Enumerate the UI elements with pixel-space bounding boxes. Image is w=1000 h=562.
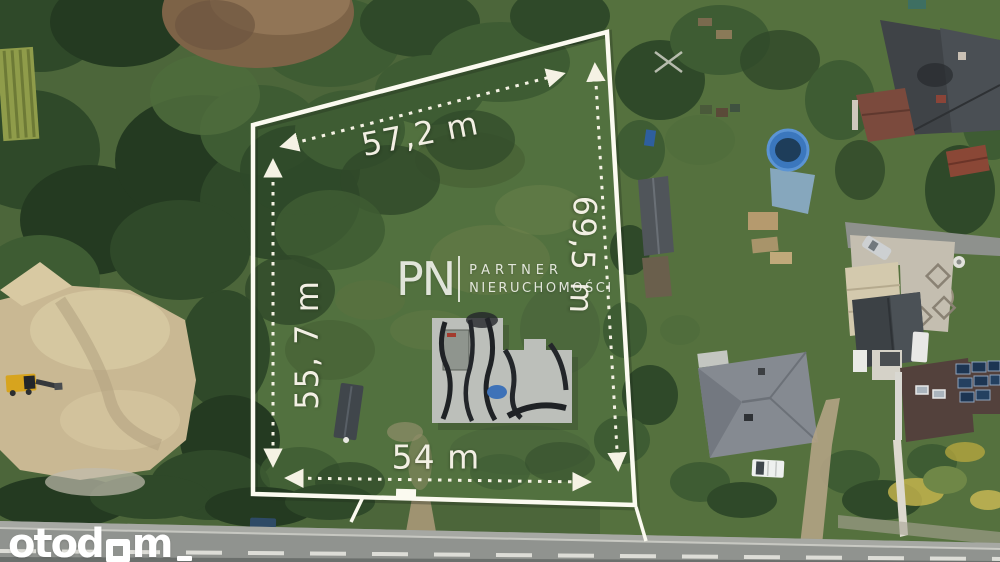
otodom-square-o-icon (106, 539, 130, 562)
agency-logo-divider (458, 256, 460, 302)
listing-photo: 57,2 m 69,5 m 55, 7 m 54 m PN PARTNER NI… (0, 0, 1000, 562)
agency-name-line2: NIERUCHOMOŚCI (469, 281, 614, 296)
agency-name-line1: PARTNER (469, 263, 614, 278)
otodom-text-suffix: m (132, 521, 172, 562)
boundary-tick-right (636, 507, 646, 541)
agency-watermark: PN PARTNER NIERUCHOMOŚCI (396, 256, 614, 302)
agency-logo-initials: PN (396, 257, 454, 301)
measure-line-bottom (288, 478, 588, 482)
otodom-underscore (177, 556, 192, 561)
plot-gate-mark (396, 489, 416, 500)
otodom-watermark: otod m (8, 521, 192, 562)
otodom-text-prefix: otod (8, 521, 103, 562)
dimension-label-bottom: 54 m (392, 438, 481, 477)
dimension-label-left: 55, 7 m (288, 280, 326, 410)
